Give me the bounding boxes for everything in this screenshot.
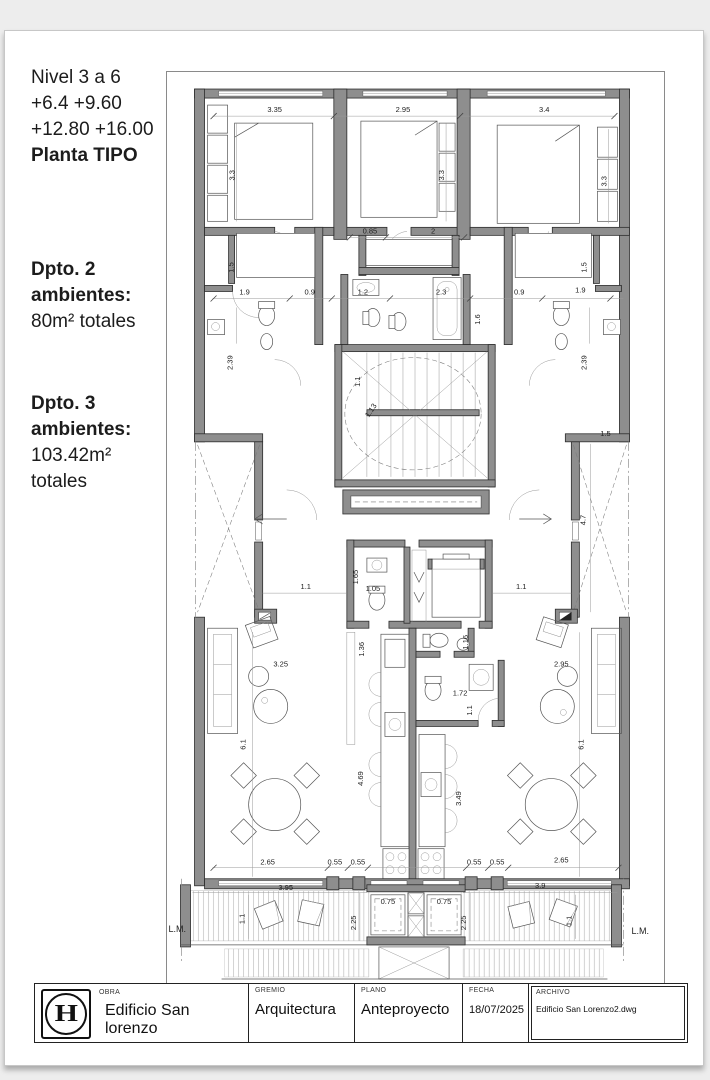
dim-label: 1.1 xyxy=(564,916,573,926)
living-right xyxy=(507,617,621,845)
dim-label: 2.39 xyxy=(226,355,235,370)
dim-label: 0.9 xyxy=(305,287,315,296)
dim-label: 2.65 xyxy=(260,858,275,867)
fecha-label: FECHA xyxy=(469,987,523,994)
plano-label: PLANO xyxy=(361,987,457,994)
plano-value: Anteproyecto xyxy=(361,1001,457,1018)
fecha-value: 18/07/2025 xyxy=(469,1004,523,1016)
living-left xyxy=(208,616,355,844)
dpto2-title: Dpto. 2 xyxy=(31,257,166,283)
dim-label: 1.1 xyxy=(238,914,247,924)
dim-label: 0.55 xyxy=(467,858,482,867)
plan-type-label: Planta TIPO xyxy=(31,143,166,169)
bathroom-center xyxy=(341,274,470,344)
dim-label: 1.1 xyxy=(301,582,311,591)
dim-label: 0.9 xyxy=(514,287,524,296)
closet-center xyxy=(359,235,459,275)
dim-label: 0.55 xyxy=(328,858,343,867)
dim-label: 4.7 xyxy=(578,515,587,525)
dim-label: 2.25 xyxy=(349,916,358,931)
property-line-label-right: L.M. xyxy=(631,926,649,936)
bedroom-center xyxy=(361,121,455,217)
dim-label: 0.55 xyxy=(490,858,505,867)
dim-label: 2.39 xyxy=(579,355,588,370)
obra-label: OBRA xyxy=(99,989,243,996)
dim-label: 1.1 xyxy=(516,582,526,591)
dim-label: 1.65 xyxy=(351,570,360,585)
title-block-gremio: GREMIO Arquitectura xyxy=(249,984,355,1042)
kitchen-right xyxy=(418,734,457,878)
level-note-line1: Nivel 3 a 6 xyxy=(31,65,166,91)
dim-label: 6.1 xyxy=(576,739,585,749)
dim-label: 1.1 xyxy=(353,376,362,386)
dpto2-area: 80m² totales xyxy=(31,309,166,335)
dim-label: 1.5 xyxy=(600,429,610,438)
dim-label: 3.3 xyxy=(599,176,608,186)
dim-label: 2.25 xyxy=(459,916,468,931)
dpto3-area: 103.42m² xyxy=(31,443,166,469)
dim-label: 0.75 xyxy=(381,897,396,906)
level-note-line3: +12.80 +16.00 xyxy=(31,117,166,143)
floor-plan: 3.35 2.95 3.4 3.3 3.3 3.3 0.85 2 1.9 0.9… xyxy=(166,71,663,986)
logo-monogram: H xyxy=(54,1002,77,1026)
dim-label: 2.3 xyxy=(436,287,446,296)
title-block: H OBRA Edificio San lorenzo GREMIO Arqui… xyxy=(34,983,688,1043)
level-note-line2: +6.4 +9.60 xyxy=(31,91,166,117)
gremio-label: GREMIO xyxy=(255,987,349,994)
dim-label: 3.3 xyxy=(228,170,237,180)
title-block-obra: H OBRA Edificio San lorenzo xyxy=(35,984,249,1042)
title-block-archivo: ARCHIVO Edificio San Lorenzo2.dwg xyxy=(529,984,687,1042)
gremio-value: Arquitectura xyxy=(255,1001,349,1018)
dim-label: 2.65 xyxy=(554,856,569,865)
bedroom-left xyxy=(208,105,313,221)
dim-label: 3.4 xyxy=(539,105,549,114)
studio-logo: H xyxy=(41,989,91,1039)
dim-label: 1.2 xyxy=(358,287,368,296)
dim-label: 3.3 xyxy=(437,170,446,180)
dim-label: 1.05 xyxy=(366,584,381,593)
dim-label: 1.16 xyxy=(461,635,470,650)
dim-label: 4.69 xyxy=(356,771,365,786)
dim-label: 1.9 xyxy=(239,287,249,296)
plan-notes: Nivel 3 a 6 +6.4 +9.60 +12.80 +16.00 Pla… xyxy=(31,65,166,521)
dim-label: 6.1 xyxy=(239,739,248,749)
dim-label: 3.9 xyxy=(535,881,545,890)
dim-label: 3.35 xyxy=(267,105,282,114)
dpto3-area2: totales xyxy=(31,469,166,495)
stair-core xyxy=(335,345,495,514)
dim-label: 2.95 xyxy=(396,105,411,114)
dim-label: 3.95 xyxy=(278,883,293,892)
archivo-label: ARCHIVO xyxy=(536,989,680,996)
obra-value: Edificio San lorenzo xyxy=(99,1002,243,1038)
dim-label: 2 xyxy=(431,226,435,235)
patio-right xyxy=(555,434,629,623)
dim-label: 3.25 xyxy=(273,659,288,668)
dpto2-subtitle: ambientes: xyxy=(31,283,166,309)
dim-label: 1.36 xyxy=(357,642,366,657)
dim-label: 1.5 xyxy=(227,262,236,272)
dim-label: 1.6 xyxy=(473,314,482,324)
dim-label: 0.85 xyxy=(363,226,378,235)
archivo-value: Edificio San Lorenzo2.dwg xyxy=(536,1004,680,1014)
dpto3-subtitle: ambientes: xyxy=(31,417,166,443)
dim-label: 2.95 xyxy=(554,659,569,668)
drawing-sheet: Nivel 3 a 6 +6.4 +9.60 +12.80 +16.00 Pla… xyxy=(4,30,704,1066)
dim-label: 1.9 xyxy=(575,285,585,294)
dim-label: 1.5 xyxy=(579,262,588,272)
kitchen-left xyxy=(369,628,416,881)
bedroom-right xyxy=(497,125,617,223)
title-block-plano: PLANO Anteproyecto xyxy=(355,984,463,1042)
property-line-label-left: L.M. xyxy=(168,924,186,934)
dim-label: 1.1 xyxy=(465,705,474,715)
dim-label: 0.55 xyxy=(351,858,366,867)
dim-label: 3.49 xyxy=(454,791,463,806)
patio-left xyxy=(195,434,277,623)
title-block-fecha: FECHA 18/07/2025 xyxy=(463,984,529,1042)
dpto3-title: Dpto. 3 xyxy=(31,391,166,417)
dim-label: 0.75 xyxy=(437,897,452,906)
dim-label: 1.72 xyxy=(453,688,468,697)
